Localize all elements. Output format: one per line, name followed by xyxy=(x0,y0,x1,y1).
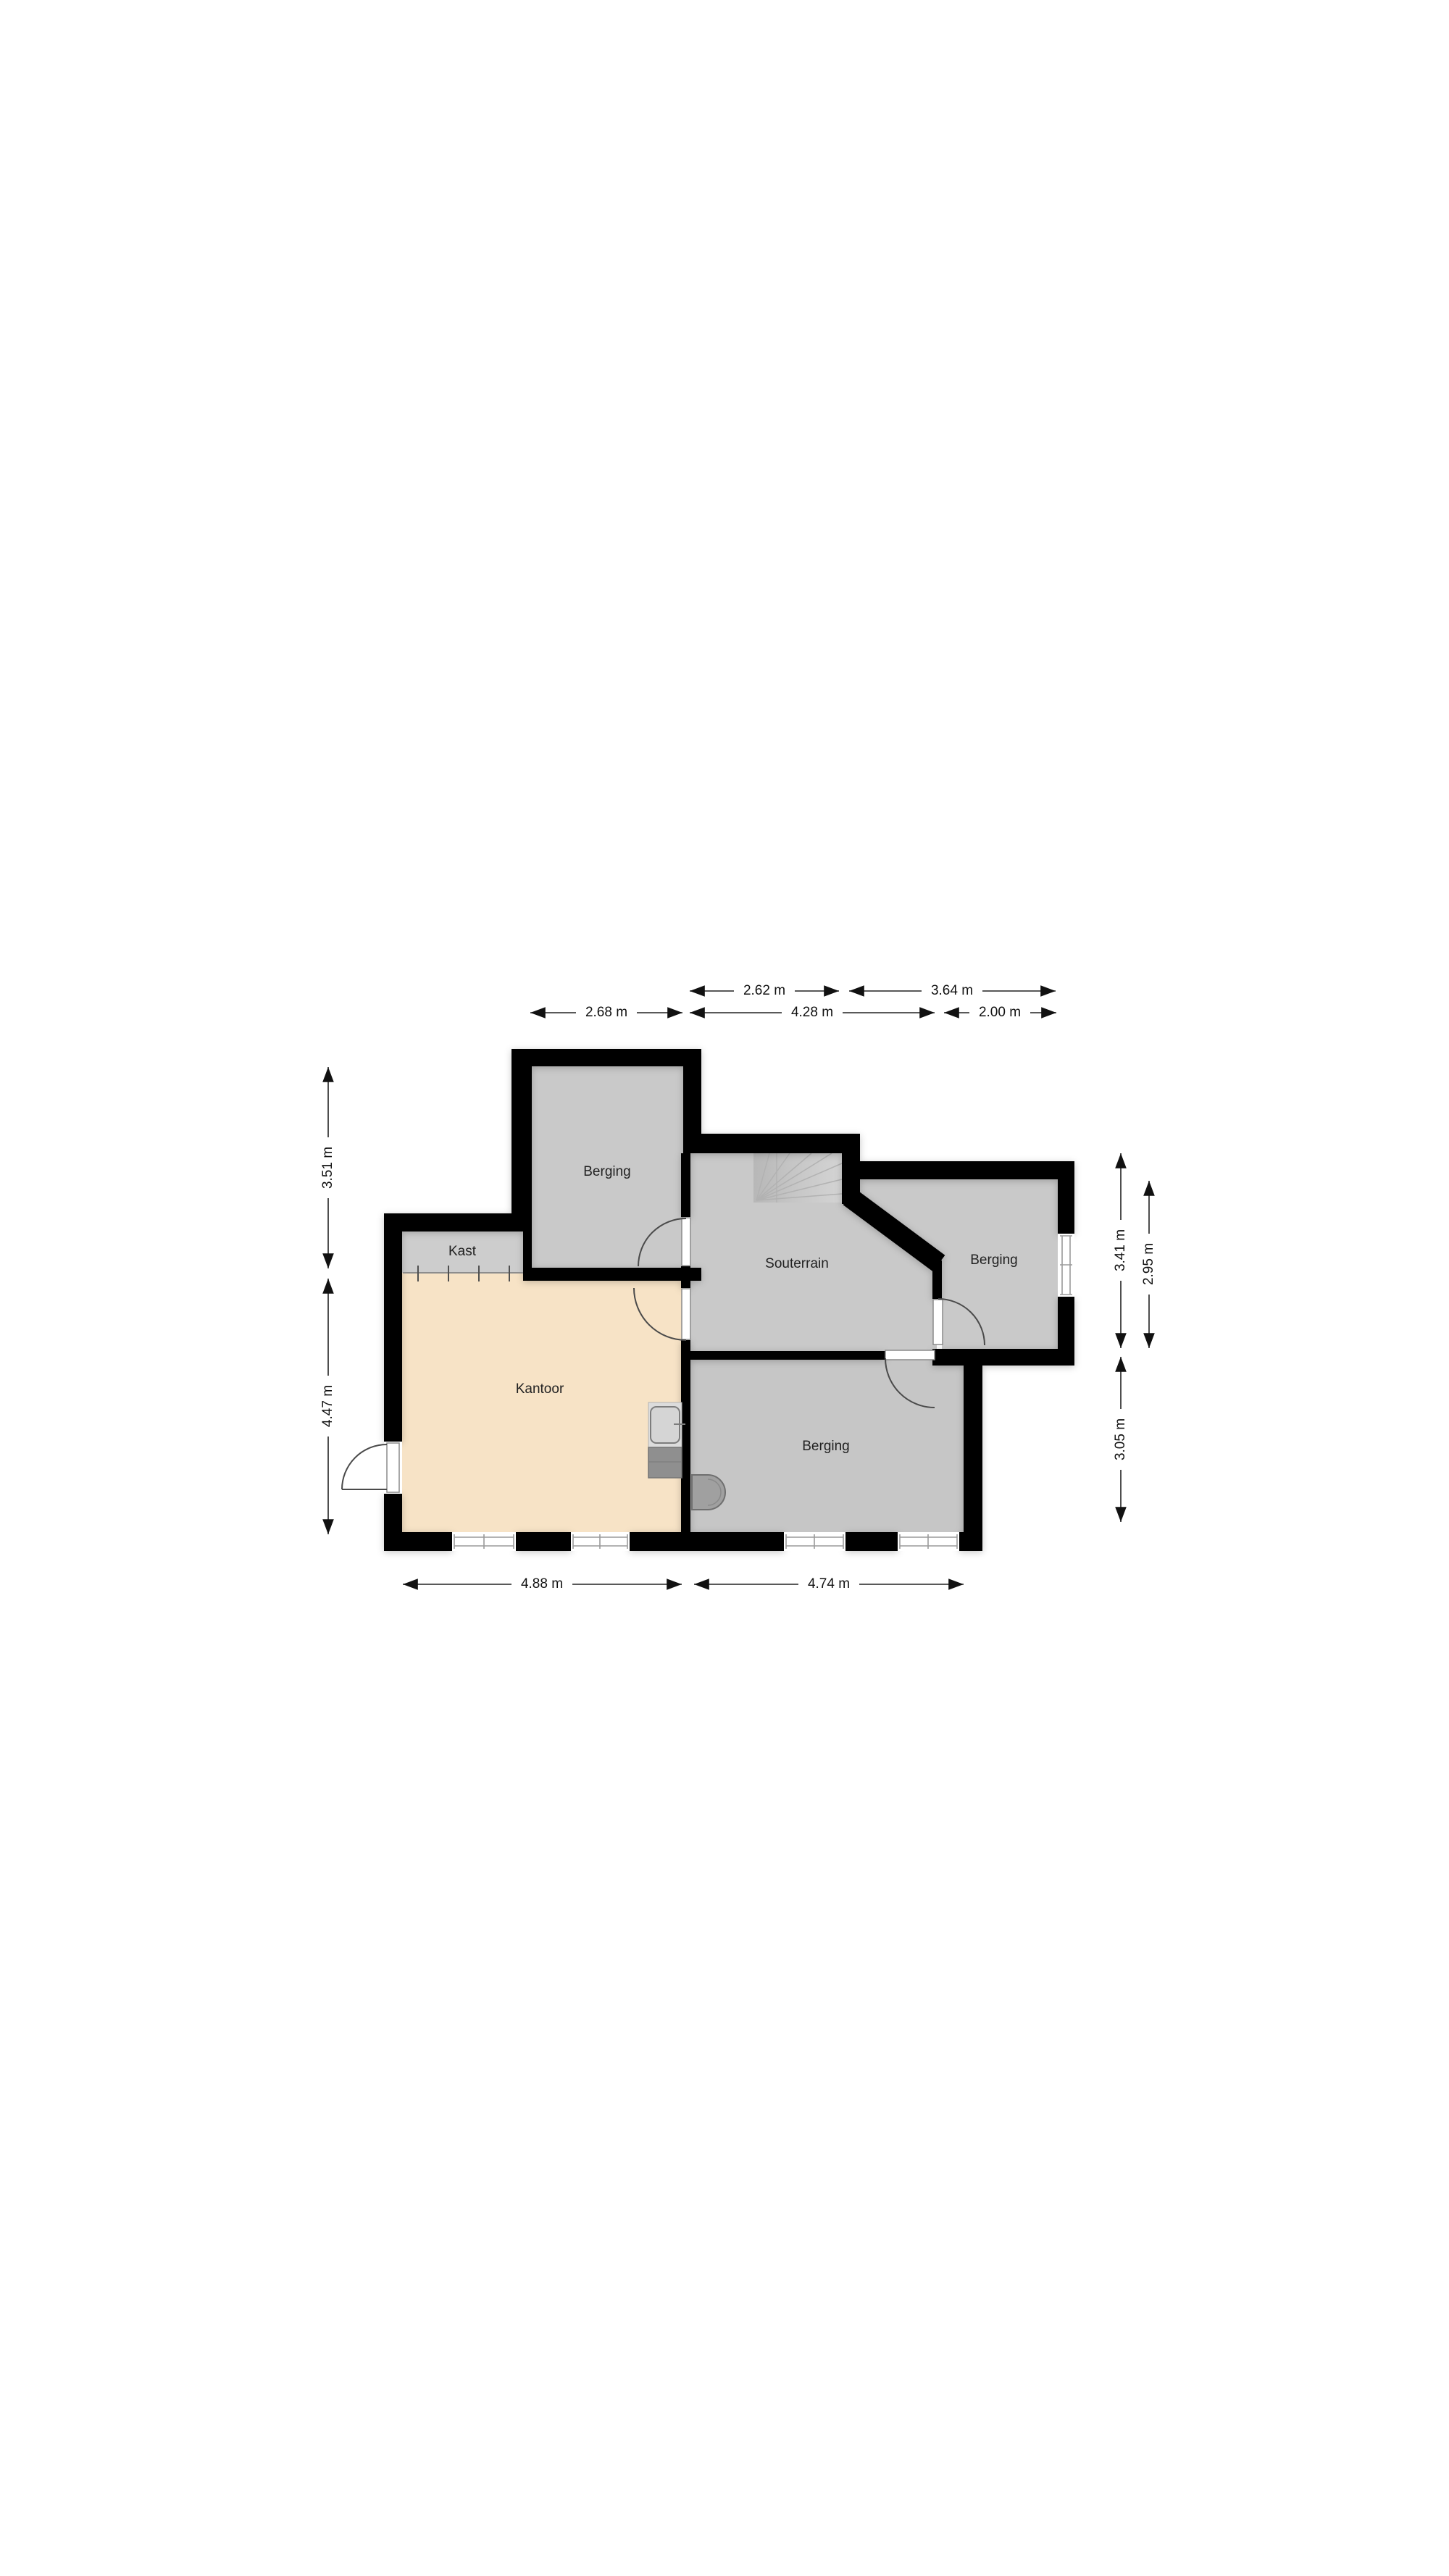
window xyxy=(452,1532,516,1551)
wall-berging-top-left xyxy=(511,1049,532,1231)
dimension-label: 2.95 m xyxy=(1141,1243,1156,1285)
dimension-label: 3.41 m xyxy=(1113,1229,1128,1271)
door-panel xyxy=(885,1350,935,1360)
dimension-label: 3.05 m xyxy=(1113,1418,1128,1460)
wall-berging-top-bottom xyxy=(523,1268,701,1281)
dimension-label: 4.47 m xyxy=(320,1385,335,1427)
room-label-berging-bottom: Berging xyxy=(802,1439,850,1454)
dimension-top-268: 2.68 m xyxy=(530,1005,682,1020)
room-label-souterrain: Souterrain xyxy=(765,1256,829,1271)
dimension-top-262: 2.62 m xyxy=(690,983,839,998)
dimension-label: 3.51 m xyxy=(320,1147,335,1189)
dimension-label: 4.74 m xyxy=(808,1576,850,1592)
dimension-bottom-488: 4.88 m xyxy=(403,1576,682,1592)
dimension-label: 4.88 m xyxy=(521,1576,563,1592)
dimension-right-295: 2.95 m xyxy=(1141,1181,1156,1348)
wall-bottom-exterior xyxy=(845,1532,898,1551)
wall-berging-souterrain xyxy=(681,1266,690,1288)
dimension-top-364: 3.64 m xyxy=(849,983,1056,998)
counter xyxy=(648,1447,682,1478)
dimension-right-341: 3.41 m xyxy=(1113,1153,1128,1348)
dimension-top-428: 4.28 m xyxy=(690,1005,935,1020)
wall-right-exterior xyxy=(1058,1161,1074,1234)
room-label-berging-top: Berging xyxy=(583,1164,631,1179)
window xyxy=(898,1532,959,1551)
room-label-kast: Kast xyxy=(448,1244,477,1259)
dimension-label: 4.28 m xyxy=(791,1005,833,1020)
dimension-left-351: 3.51 m xyxy=(320,1067,335,1268)
wall-berging-top-top xyxy=(511,1049,701,1066)
wall-left-exterior xyxy=(384,1213,402,1442)
wall-souterrain-top xyxy=(683,1134,860,1153)
dimension-label: 2.68 m xyxy=(585,1005,627,1020)
wall-berging-bottom-right xyxy=(964,1349,982,1551)
wall-souterrain-berging-bottom xyxy=(690,1351,885,1360)
dimension-top-200: 2.00 m xyxy=(944,1005,1056,1020)
room-label-kantoor: Kantoor xyxy=(516,1381,564,1397)
wall-bottom-exterior xyxy=(630,1532,784,1551)
wall-berging-souterrain xyxy=(681,1153,690,1217)
door-panel xyxy=(682,1218,690,1266)
door-panel xyxy=(387,1443,399,1492)
dimension-label: 3.64 m xyxy=(931,983,973,998)
dimension-left-447: 4.47 m xyxy=(320,1279,335,1534)
wall-bottom-exterior xyxy=(516,1532,571,1551)
dimension-bottom-474: 4.74 m xyxy=(694,1576,964,1592)
wall-berging-right-bottom xyxy=(932,1349,1074,1366)
wall-main-top xyxy=(384,1213,523,1231)
wall-kantoor-berging-bottom xyxy=(681,1340,690,1532)
room-label-berging-right: Berging xyxy=(970,1253,1018,1268)
boiler-icon xyxy=(692,1475,725,1510)
stairs xyxy=(753,1153,842,1203)
dimension-label: 2.62 m xyxy=(743,983,785,998)
window xyxy=(784,1532,845,1551)
door-panel xyxy=(682,1289,690,1339)
floorplan-page: Berging Kast Souterrain Berging Kantoor … xyxy=(0,0,1449,2576)
window xyxy=(571,1532,630,1551)
floorplan-canvas: Berging Kast Souterrain Berging Kantoor … xyxy=(0,0,1449,2576)
door-panel xyxy=(933,1300,943,1345)
wall-berging-right-top xyxy=(855,1161,1074,1179)
door-arc xyxy=(342,1444,387,1489)
dimension-right-305: 3.05 m xyxy=(1113,1357,1128,1522)
window xyxy=(1058,1234,1074,1297)
dimension-label: 2.00 m xyxy=(979,1005,1021,1020)
wall-below-diagonal xyxy=(932,1260,942,1299)
wall-bottom-exterior xyxy=(384,1532,452,1551)
